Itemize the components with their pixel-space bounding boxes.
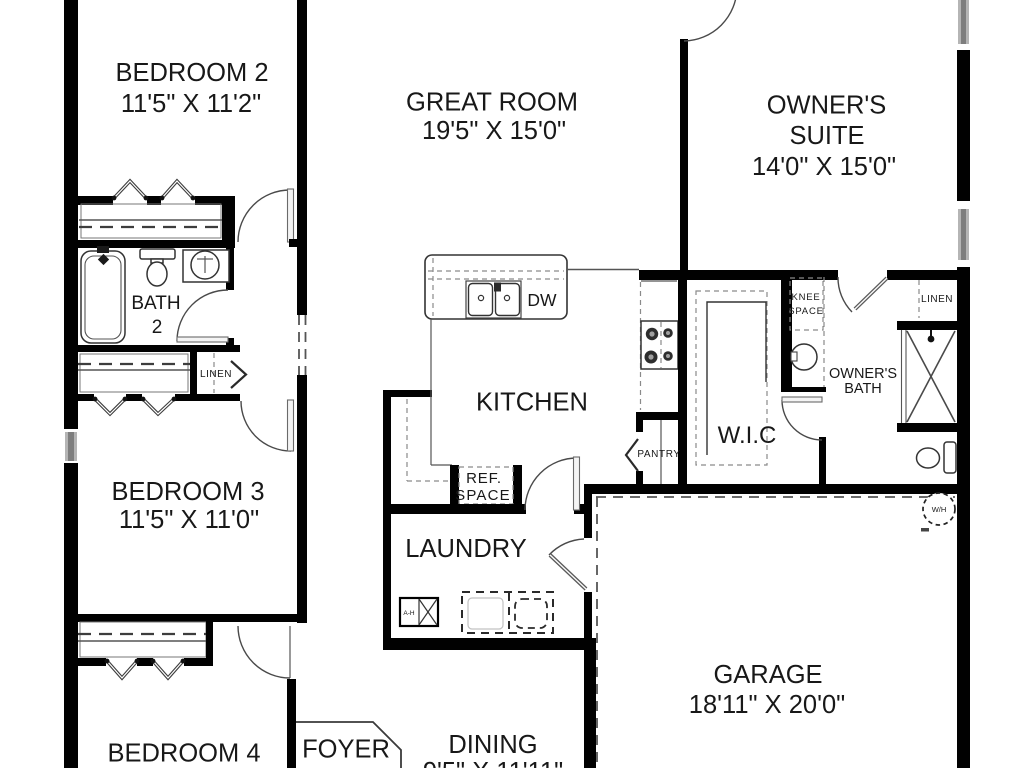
svg-text:DW: DW bbox=[527, 290, 557, 310]
svg-text:BATH: BATH bbox=[131, 293, 180, 314]
svg-text:DINING: DINING bbox=[448, 731, 537, 759]
svg-text:SUITE: SUITE bbox=[789, 122, 864, 150]
svg-text:A-H: A-H bbox=[403, 610, 415, 617]
svg-text:BEDROOM 4: BEDROOM 4 bbox=[107, 740, 260, 768]
svg-text:11'5" X 11'0": 11'5" X 11'0" bbox=[119, 506, 259, 534]
svg-text:LAUNDRY: LAUNDRY bbox=[405, 535, 526, 563]
svg-text:W/H: W/H bbox=[932, 505, 947, 514]
svg-text:SPACE: SPACE bbox=[788, 306, 824, 317]
svg-text:18'11" X 20'0": 18'11" X 20'0" bbox=[689, 691, 845, 719]
svg-text:OWNER'S: OWNER'S bbox=[767, 92, 887, 120]
svg-text:SPACE: SPACE bbox=[455, 487, 511, 504]
svg-text:GREAT ROOM: GREAT ROOM bbox=[406, 89, 578, 117]
svg-text:14'0" X 15'0": 14'0" X 15'0" bbox=[752, 153, 896, 181]
svg-text:9'5" X 11'11": 9'5" X 11'11" bbox=[423, 758, 563, 768]
svg-text:OWNER'S: OWNER'S bbox=[829, 366, 897, 382]
svg-text:11'5" X 11'2": 11'5" X 11'2" bbox=[121, 90, 261, 118]
svg-text:FOYER: FOYER bbox=[302, 736, 390, 764]
svg-text:2: 2 bbox=[152, 317, 163, 338]
svg-text:REF.: REF. bbox=[466, 470, 502, 487]
svg-text:BEDROOM 3: BEDROOM 3 bbox=[111, 478, 264, 506]
svg-text:LINEN: LINEN bbox=[921, 294, 953, 305]
svg-text:BEDROOM 2: BEDROOM 2 bbox=[115, 59, 268, 87]
svg-text:BATH: BATH bbox=[844, 381, 882, 397]
svg-text:KNEE: KNEE bbox=[791, 292, 820, 303]
svg-text:W.I.C: W.I.C bbox=[718, 422, 777, 449]
svg-text:GARAGE: GARAGE bbox=[713, 661, 822, 689]
svg-text:LINEN: LINEN bbox=[200, 369, 232, 380]
svg-text:19'5" X 15'0": 19'5" X 15'0" bbox=[422, 117, 566, 145]
svg-text:PANTRY: PANTRY bbox=[637, 449, 680, 460]
svg-text:KITCHEN: KITCHEN bbox=[476, 389, 588, 417]
